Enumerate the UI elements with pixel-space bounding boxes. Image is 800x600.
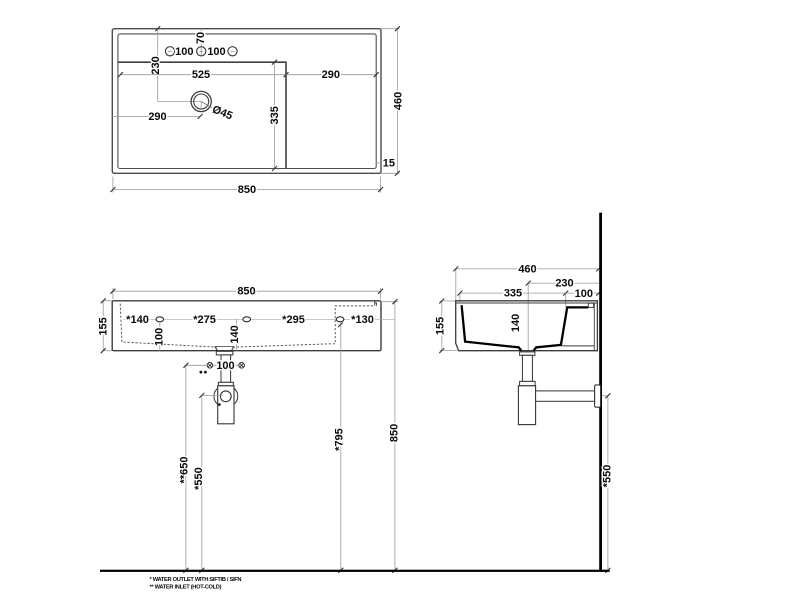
svg-text:140: 140 [510,314,522,332]
svg-text:155: 155 [435,317,447,335]
svg-text:*795: *795 [333,428,345,451]
svg-text:230: 230 [150,56,162,74]
svg-text:850: 850 [389,424,401,442]
svg-text:335: 335 [269,106,281,124]
svg-text:155: 155 [98,317,110,335]
svg-text:100: 100 [154,328,166,346]
svg-text:100: 100 [216,360,234,372]
svg-text:525: 525 [192,69,210,81]
svg-text:* WATER OUTLET WITH SIFTIB /: * WATER OUTLET WITH SIFTIB / SIFN [150,577,242,583]
svg-text:*550: *550 [602,465,614,488]
svg-text:460: 460 [392,92,404,110]
svg-text:70: 70 [195,32,207,44]
svg-text:*295: *295 [282,314,305,326]
svg-text:*130: *130 [351,314,374,326]
svg-text:140: 140 [229,325,241,343]
svg-text:460: 460 [518,263,536,275]
svg-text:290: 290 [322,69,340,81]
svg-text:290: 290 [148,111,166,123]
svg-text:*140: *140 [126,314,149,326]
svg-text:100: 100 [207,46,225,58]
svg-text:*550: *550 [193,467,205,490]
svg-text:335: 335 [504,288,522,300]
svg-text:15: 15 [383,158,395,170]
svg-text:**650: **650 [178,457,190,484]
svg-text:850: 850 [237,286,255,298]
svg-text:** WATER INLET (HOT-COLD): ** WATER INLET (HOT-COLD) [150,585,222,591]
svg-text:100: 100 [575,288,593,300]
svg-text:230: 230 [555,278,573,290]
svg-text:100: 100 [175,46,193,58]
svg-text:850: 850 [238,184,256,196]
svg-text:*275: *275 [193,314,216,326]
